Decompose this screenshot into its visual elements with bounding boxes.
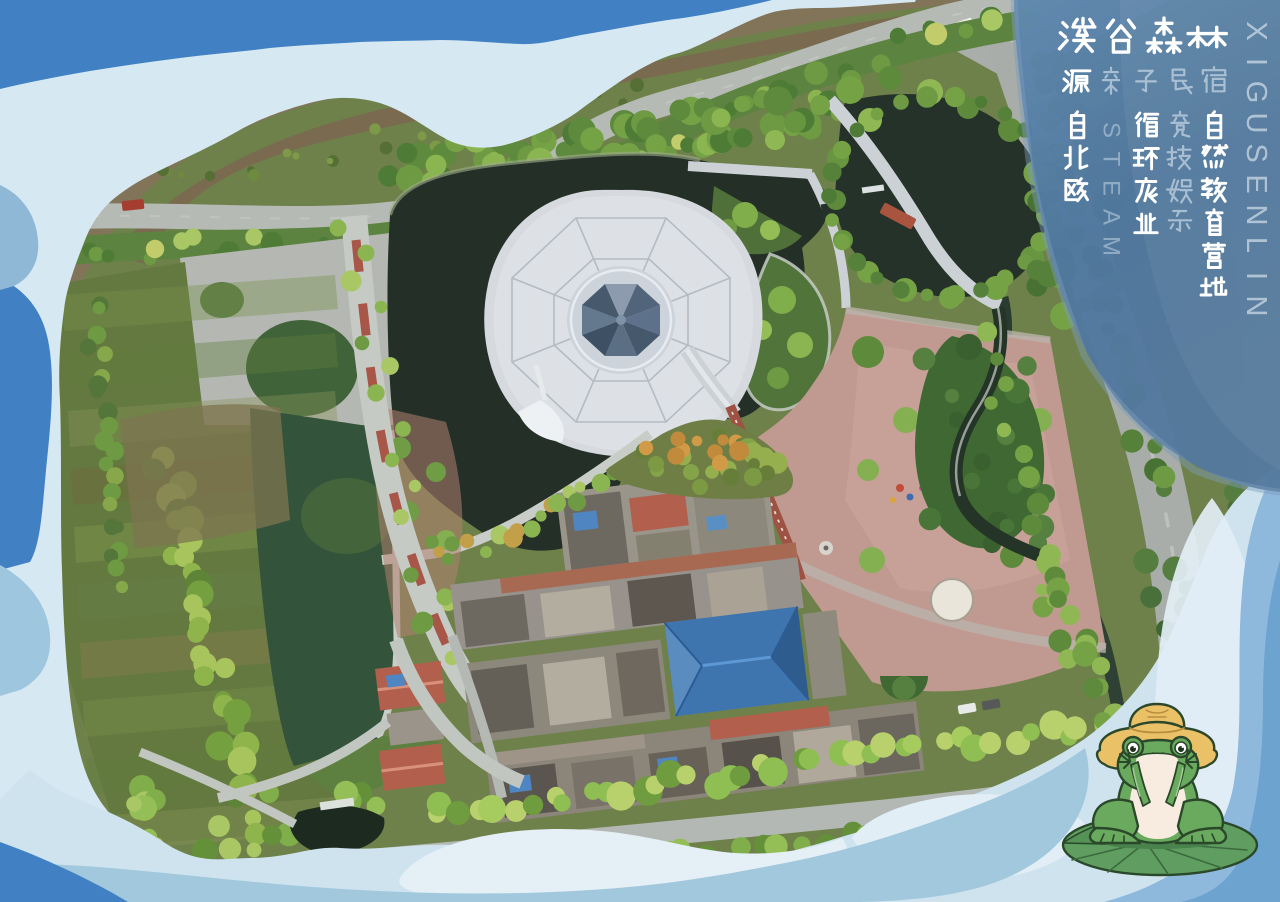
svg-text:N: N: [1240, 205, 1272, 226]
svg-text:L: L: [1240, 237, 1272, 253]
svg-text:S: S: [1098, 122, 1125, 138]
svg-text:I: I: [1240, 58, 1272, 66]
svg-text:E: E: [1098, 180, 1125, 196]
svg-text:E: E: [1240, 174, 1272, 193]
svg-text:U: U: [1240, 113, 1272, 134]
svg-text:N: N: [1240, 296, 1272, 317]
svg-text:I: I: [1240, 272, 1272, 280]
svg-text:G: G: [1240, 81, 1272, 104]
svg-text:A: A: [1098, 209, 1125, 225]
svg-text:T: T: [1098, 152, 1125, 167]
svg-text:S: S: [1240, 143, 1272, 162]
svg-text:M: M: [1098, 236, 1125, 256]
svg-text:X: X: [1240, 21, 1272, 40]
